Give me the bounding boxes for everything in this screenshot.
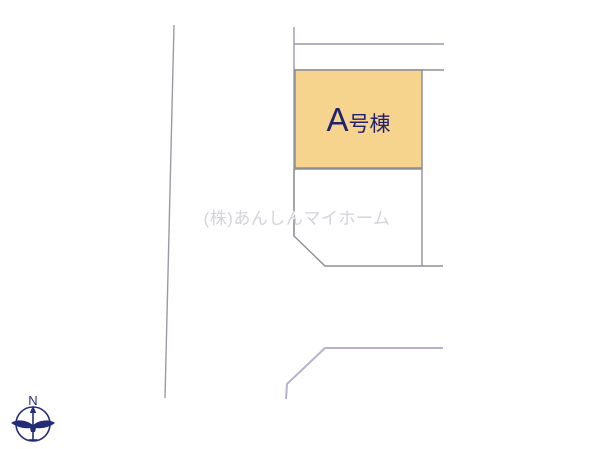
parcel-below-outline [294, 169, 443, 266]
site-plan: A号棟 (株)あんしんマイホーム N [0, 0, 600, 449]
road-edge-line [286, 348, 443, 399]
parcel-a-highlight [295, 70, 422, 168]
north-compass-icon: N [8, 392, 60, 448]
plan-drawing [0, 0, 600, 449]
boundary-line-left [165, 25, 174, 398]
